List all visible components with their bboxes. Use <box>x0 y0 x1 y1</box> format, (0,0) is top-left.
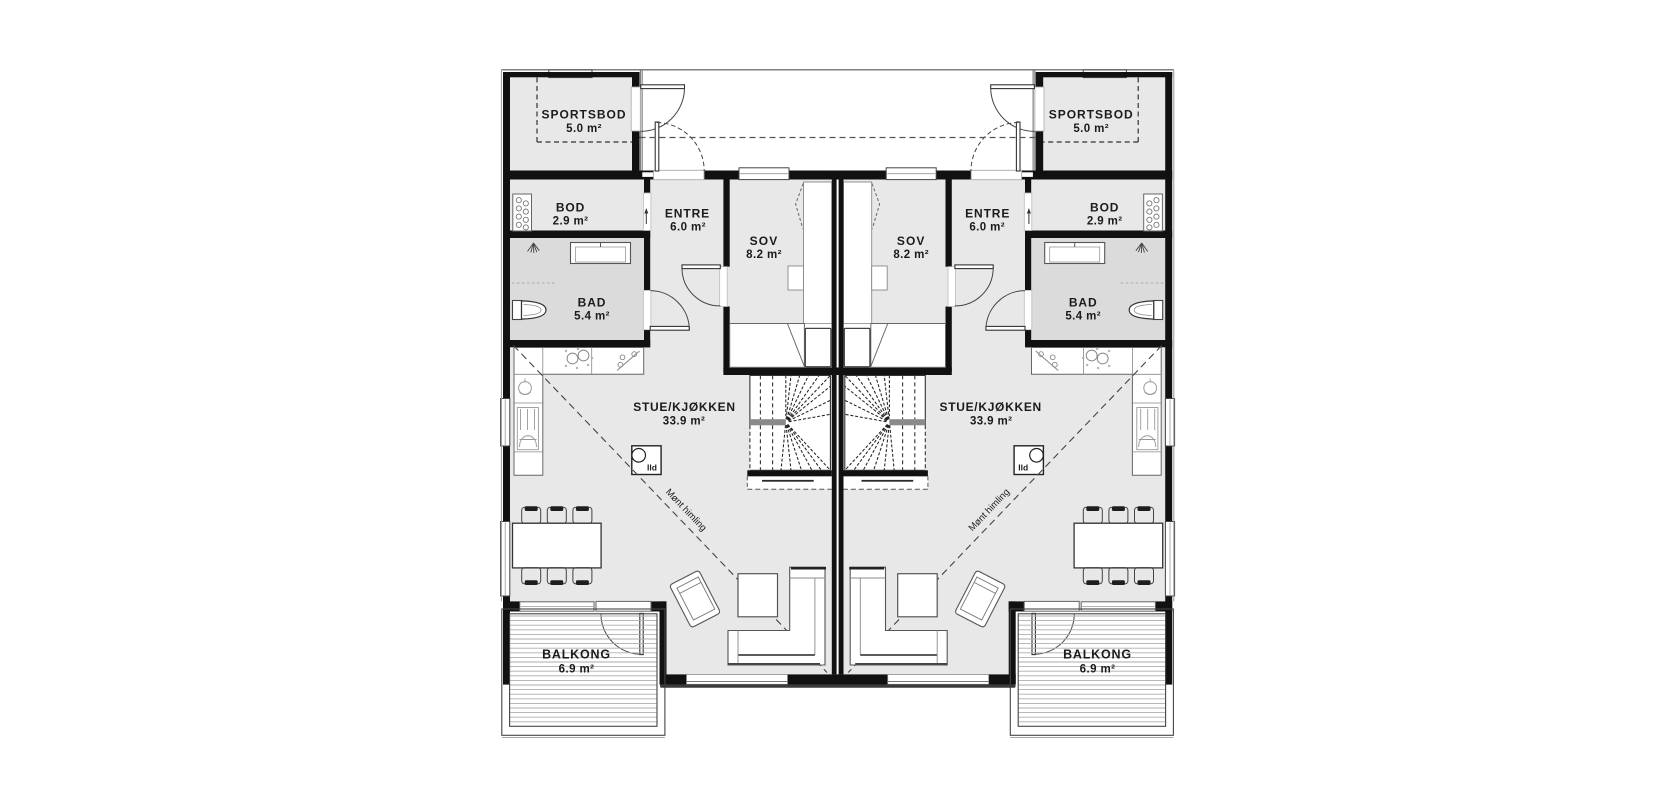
svg-text:BAD: BAD <box>578 296 607 310</box>
svg-text:2.9 m²: 2.9 m² <box>1087 216 1123 228</box>
svg-text:SOV: SOV <box>897 234 926 248</box>
svg-text:5.0 m²: 5.0 m² <box>566 123 602 135</box>
svg-text:STUE/KJØKKEN: STUE/KJØKKEN <box>633 400 735 414</box>
svg-text:33.9 m²: 33.9 m² <box>970 416 1012 428</box>
svg-text:5.0 m²: 5.0 m² <box>1073 123 1109 135</box>
svg-text:SPORTSBOD: SPORTSBOD <box>541 108 626 122</box>
svg-text:8.2 m²: 8.2 m² <box>746 249 782 261</box>
svg-text:BOD: BOD <box>1090 201 1119 215</box>
svg-text:2.9 m²: 2.9 m² <box>553 216 589 228</box>
svg-text:BAD: BAD <box>1069 296 1098 310</box>
svg-text:Ild: Ild <box>1018 463 1028 473</box>
svg-text:8.2 m²: 8.2 m² <box>893 249 929 261</box>
svg-text:SPORTSBOD: SPORTSBOD <box>1049 108 1134 122</box>
svg-text:6.9 m²: 6.9 m² <box>1080 664 1116 676</box>
svg-text:5.4 m²: 5.4 m² <box>574 311 610 323</box>
svg-text:SOV: SOV <box>750 234 779 248</box>
svg-text:6.0 m²: 6.0 m² <box>670 222 706 234</box>
svg-text:BALKONG: BALKONG <box>542 648 611 662</box>
svg-text:BALKONG: BALKONG <box>1063 648 1132 662</box>
svg-text:6.9 m²: 6.9 m² <box>559 664 595 676</box>
svg-text:ENTRE: ENTRE <box>665 207 710 221</box>
svg-text:ENTRE: ENTRE <box>965 207 1010 221</box>
svg-text:Ild: Ild <box>647 463 657 473</box>
svg-text:STUE/KJØKKEN: STUE/KJØKKEN <box>939 400 1041 414</box>
svg-text:6.0 m²: 6.0 m² <box>969 222 1005 234</box>
svg-text:33.9 m²: 33.9 m² <box>663 416 705 428</box>
svg-text:BOD: BOD <box>556 201 585 215</box>
svg-text:5.4 m²: 5.4 m² <box>1065 311 1101 323</box>
